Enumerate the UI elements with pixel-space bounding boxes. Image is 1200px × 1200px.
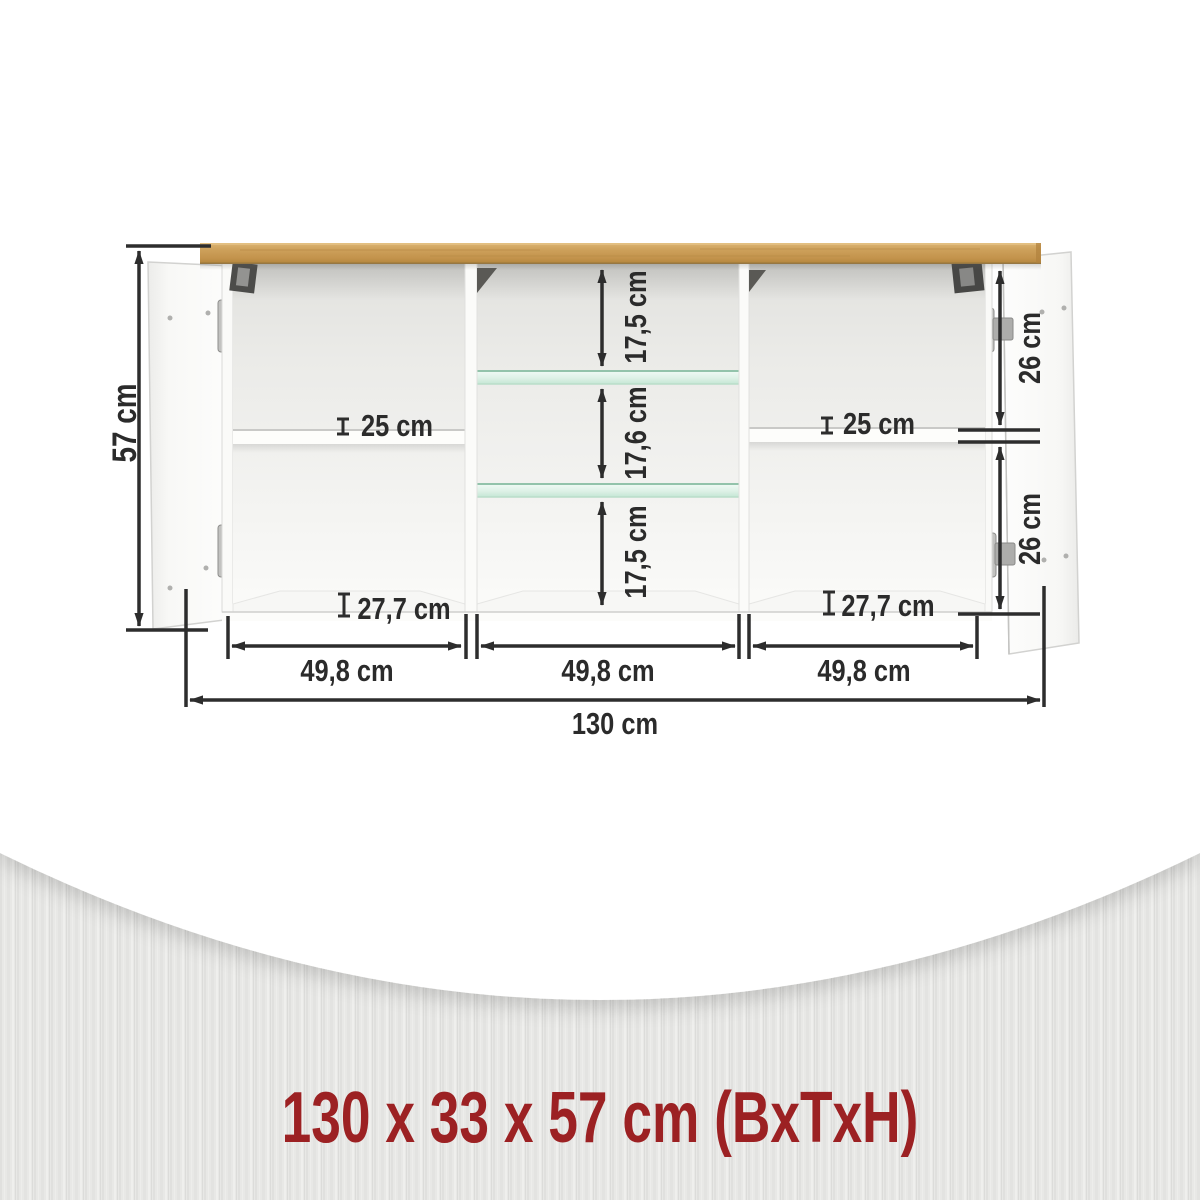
partition-right [739,262,749,612]
label-middle-top: 17,5 cm [619,270,654,363]
label-right-top: 26 cm [1013,312,1048,384]
label-middle-bottom: 17,5 cm [619,505,654,598]
screw-dot [206,311,211,316]
screw-dot [168,586,173,591]
label-lower-left: 27,7 cm [357,592,450,627]
middle-compartment [477,262,739,612]
label-shelf-left: 25 cm [361,409,433,444]
left-side-panel [222,262,233,612]
footer-dimension-summary: 130 x 33 x 57 cm (BxTxH) [282,1078,919,1158]
screw-dot [168,316,173,321]
label-height: 57 cm [105,383,143,462]
right-side-panel [985,262,992,612]
glass-shelf [477,371,739,384]
screw-dot [204,566,209,571]
label-middle-center: 17,6 cm [619,386,654,479]
glass-shelf [477,484,739,497]
product-dimension-diagram: 57 cm 17,5 cm 17,6 cm 17,5 cm 26 cm 26 c… [0,0,1200,1200]
label-width-left: 49,8 cm [300,654,393,689]
screw-dot [1062,306,1067,311]
wood-top [200,243,1041,270]
label-right-bottom: 26 cm [1013,493,1048,565]
label-width-right: 49,8 cm [817,654,910,689]
screw-dot [1064,554,1069,559]
partition-left [465,262,477,612]
label-total-width: 130 cm [572,707,658,742]
label-width-middle: 49,8 cm [561,654,654,689]
label-shelf-right: 25 cm [843,407,915,442]
cabinet-illustration [148,243,1079,654]
label-lower-right: 27,7 cm [841,589,934,624]
